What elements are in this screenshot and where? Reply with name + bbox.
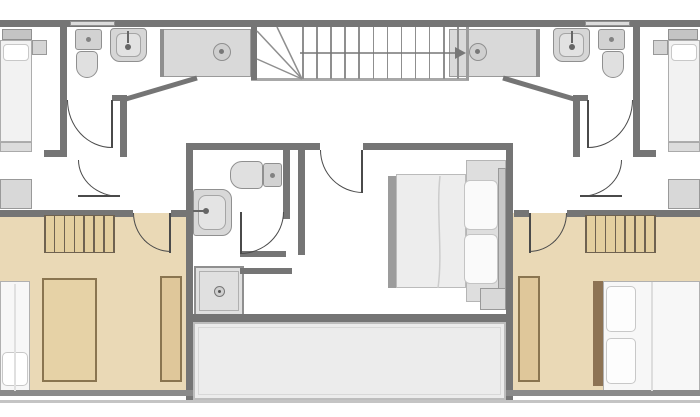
closet-hatch-right-line <box>634 215 636 253</box>
door-bedroom-left-leaf <box>169 213 171 253</box>
bed-top-left-headboard <box>2 29 32 40</box>
stair-tread <box>387 27 389 79</box>
wall-bottom-center <box>186 314 513 322</box>
counter-left-partition <box>160 29 164 77</box>
closet-hatch-left-line <box>54 215 56 253</box>
bed-center-pillow-1 <box>464 180 498 230</box>
stair-tread <box>415 27 417 79</box>
bed-right-bedroom-headboard <box>593 281 603 386</box>
door-bedroom-right-leaf <box>529 213 531 253</box>
wall-center-right-vertical <box>506 143 513 402</box>
counter-right-partition <box>536 29 540 77</box>
window-top-right <box>585 21 630 26</box>
stair-tread <box>401 27 403 79</box>
door-left-corridor-leaf <box>78 195 120 197</box>
stair-tread <box>457 27 459 79</box>
bed-center-headboard <box>498 168 506 296</box>
bed-top-right-headboard <box>668 29 698 40</box>
terrace-inner-line <box>198 327 501 395</box>
door-right-corridor-leaf <box>580 195 622 197</box>
stair-winder-3 <box>257 59 302 79</box>
bench-top-right <box>668 142 700 152</box>
wall-left-bedroom-divider <box>60 27 67 152</box>
wall-beige-bottom-right <box>506 390 700 396</box>
stair-tread <box>330 27 332 79</box>
faucet-right-line <box>571 31 573 43</box>
wall-right-hall-corner <box>573 95 588 101</box>
closet-hatch-left-line <box>103 215 105 253</box>
stair-tread <box>358 27 360 79</box>
bed-top-right-pillow <box>671 44 697 61</box>
bed-center-mattress <box>396 174 466 288</box>
wall-center-top-right <box>363 143 506 150</box>
stair-winder-2 <box>277 27 302 79</box>
door-bedroom-center-arc <box>320 150 363 193</box>
closet-hatch-right-line <box>595 215 597 253</box>
stair-tread <box>316 27 318 79</box>
wardrobe-left-bedroom <box>160 276 182 382</box>
wall-beige-top-left-b <box>171 210 186 217</box>
wall-left-hall-vertical <box>120 95 127 157</box>
wall-diagonal-right <box>503 78 574 99</box>
basin-right-dot <box>475 49 480 54</box>
dresser-top-left <box>0 179 32 209</box>
toilet-center-bowl <box>230 161 263 189</box>
nightstand-top-right <box>653 40 668 55</box>
bed-left-bedroom-pillow <box>2 352 28 386</box>
floor-plan <box>0 0 700 417</box>
wardrobe-right-bedroom <box>518 276 540 382</box>
closet-hatch-left-line <box>93 215 95 253</box>
door-bedroom-center-leaf <box>361 150 363 193</box>
closet-hatch-right-line <box>605 215 607 253</box>
counter-left-bathroom <box>163 29 251 77</box>
toilet-right-tank-dot <box>609 37 614 42</box>
wall-left-hall-corner <box>112 95 127 101</box>
toilet-center-tank-dot <box>270 173 275 178</box>
basin-left-dot <box>219 49 224 54</box>
wall-bathroom-right-upper <box>283 143 290 219</box>
line-bottom-edge <box>0 400 700 403</box>
bed-center-pillow-2 <box>464 234 498 284</box>
wall-left-corridor-stub <box>44 150 67 157</box>
toilet-left-tank-dot <box>86 37 91 42</box>
door-right-hall-arc <box>588 100 633 148</box>
window-top-left <box>70 21 115 26</box>
faucet-center-dot <box>203 208 209 214</box>
wall-right-hall-vertical <box>573 95 580 157</box>
toilet-left-bowl <box>76 51 98 78</box>
stair-tread <box>302 27 304 79</box>
stair-right-wall <box>466 27 469 80</box>
stair-tread <box>373 27 375 79</box>
bed-center-footboard <box>388 176 396 288</box>
stair-tread <box>443 27 445 79</box>
door-bathroom-center-arc <box>240 212 284 254</box>
wall-bathroom-stub-2 <box>240 268 292 274</box>
nightstand-center <box>480 288 506 310</box>
door-bathroom-center-leaf <box>240 212 242 254</box>
closet-hatch-left-line <box>44 215 46 253</box>
stair-winder-1 <box>257 31 302 79</box>
toilet-right-bowl <box>602 51 624 78</box>
counter-right-bathroom <box>449 29 537 77</box>
stair-bottom-line <box>251 78 469 81</box>
nightstand-top-left <box>32 40 47 55</box>
wall-diagonal-left <box>126 78 197 99</box>
wall-beige-bottom-left <box>0 390 193 396</box>
faucet-left-dot <box>125 44 131 50</box>
stair-tread <box>429 27 431 79</box>
stair-left-wall <box>251 27 257 80</box>
closet-hatch-left-line <box>74 215 76 253</box>
faucet-right-dot <box>569 44 575 50</box>
wall-center-left-vertical <box>186 143 193 402</box>
closet-hatch-right-line <box>644 215 646 253</box>
rug-left-bedroom <box>42 278 97 382</box>
wall-bedroom-center-left <box>298 143 305 255</box>
wall-right-bedroom-divider <box>633 27 640 152</box>
bench-top-left <box>0 142 32 152</box>
door-right-corridor-arc <box>580 160 622 197</box>
door-left-hall-leaf <box>111 100 113 148</box>
door-left-corridor-arc <box>78 160 120 197</box>
wall-beige-top-right-a <box>514 210 529 217</box>
stair-tread <box>344 27 346 79</box>
closet-hatch-left-line <box>83 215 85 253</box>
faucet-left-line <box>127 31 129 43</box>
closet-hatch-right-line <box>624 215 626 253</box>
closet-hatch-left-line <box>64 215 66 253</box>
closet-hatch-left-line <box>113 215 115 253</box>
sink-center-basin <box>198 195 226 230</box>
bed-right-bedroom-pillow-2 <box>606 338 636 384</box>
door-right-hall-leaf <box>587 100 589 148</box>
door-left-hall-arc <box>67 100 112 148</box>
closet-hatch-right-line <box>615 215 617 253</box>
shower-center-drain-dot <box>218 290 221 293</box>
closet-hatch-right-line <box>654 215 656 253</box>
closet-hatch-right-line <box>585 215 587 253</box>
bed-top-left-pillow <box>3 44 29 61</box>
wall-right-corridor-stub <box>633 150 656 157</box>
dresser-top-right <box>668 179 700 209</box>
bed-right-bedroom-pillow-1 <box>606 286 636 332</box>
